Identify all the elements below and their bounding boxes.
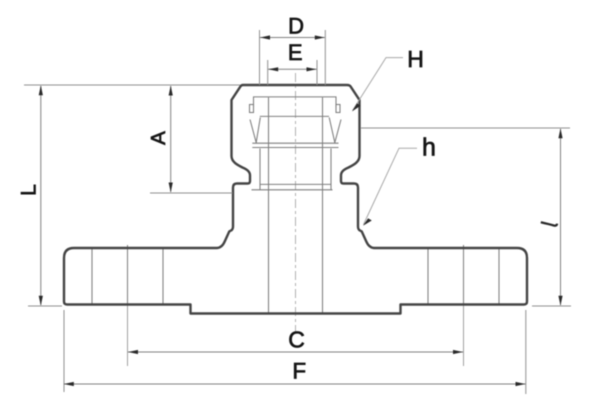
svg-text:D: D bbox=[288, 14, 304, 39]
svg-text:C: C bbox=[288, 327, 305, 353]
svg-text:A: A bbox=[147, 131, 170, 145]
svg-text:L: L bbox=[17, 184, 40, 196]
svg-text:E: E bbox=[288, 40, 303, 65]
svg-text:F: F bbox=[292, 358, 306, 383]
svg-text:H: H bbox=[407, 46, 424, 72]
svg-text:h: h bbox=[422, 134, 436, 162]
